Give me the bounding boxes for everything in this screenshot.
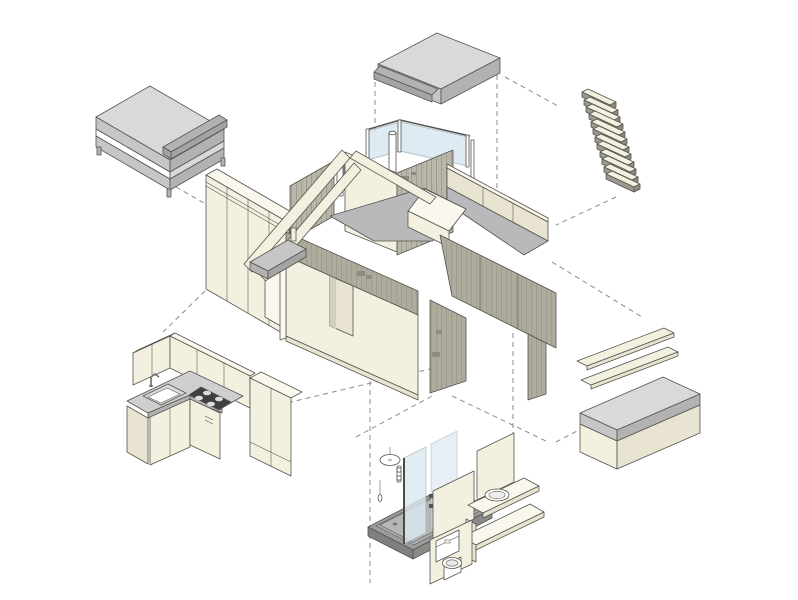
faucet-base (149, 385, 153, 387)
pillar-hardware-mark (436, 330, 442, 334)
support-pillar-left (430, 300, 466, 393)
bed-leg (221, 158, 225, 166)
dashed-connector-mattress-ladder (505, 77, 560, 107)
handheld-shower (378, 495, 382, 502)
base-cabinet-end (127, 406, 148, 464)
railing-post (398, 120, 401, 152)
bed-leg (97, 147, 101, 155)
house-shell: house shell (244, 120, 556, 400)
dashed-connector-wardrobe-kitchen (163, 291, 205, 332)
railing-post (466, 135, 469, 167)
dashed-connector-house-bathroom (356, 396, 432, 437)
toilet-seat (446, 560, 458, 566)
loft-mattress: loft mattress (374, 33, 500, 104)
mixer-knob (397, 468, 401, 472)
door-jamb-shadow (330, 276, 336, 329)
glass-hinge (429, 504, 433, 508)
mixer-knob (397, 476, 401, 480)
shower-glass-door (404, 447, 426, 544)
cooktop-burner (207, 402, 215, 407)
glass-hinge (429, 494, 433, 498)
pillar-hardware-mark (432, 352, 440, 357)
shower-head-center (388, 459, 392, 461)
vent-pipe-top (389, 131, 396, 135)
railing-post (366, 129, 369, 161)
dashed-connector-house-bench (452, 396, 546, 441)
cooktop-burner (203, 391, 211, 396)
vent-pipe (389, 133, 396, 173)
cooktop-burner (215, 397, 223, 402)
shower-drain (393, 523, 398, 526)
flush-button (445, 540, 450, 543)
faucet (151, 374, 159, 386)
cooktop-burner (195, 396, 203, 401)
dashed-connector-ladder-house (556, 197, 616, 225)
bathroom-module: bathroom module (368, 431, 544, 584)
wall-stamp-mark (357, 271, 365, 276)
dashed-connector-house-shelves (552, 262, 642, 317)
bed-leg (167, 189, 171, 197)
kitchen-block: kitchen block (127, 333, 302, 476)
loft-ladder: loft ladder (582, 89, 640, 192)
wall-stamp-mark (366, 275, 372, 279)
exploded-axonometric-canvas: tiny-house-components exploded-view conn… (0, 0, 798, 600)
washbasin-bowl (489, 491, 505, 499)
diagram-page: tiny-house-components exploded-view conn… (0, 0, 798, 600)
storage-bench: storage bench (580, 377, 700, 469)
gable-post (291, 228, 296, 241)
wall-stamp-mark (411, 172, 416, 175)
dashed-connector-bench (556, 431, 577, 442)
support-pillar-right (528, 334, 546, 400)
